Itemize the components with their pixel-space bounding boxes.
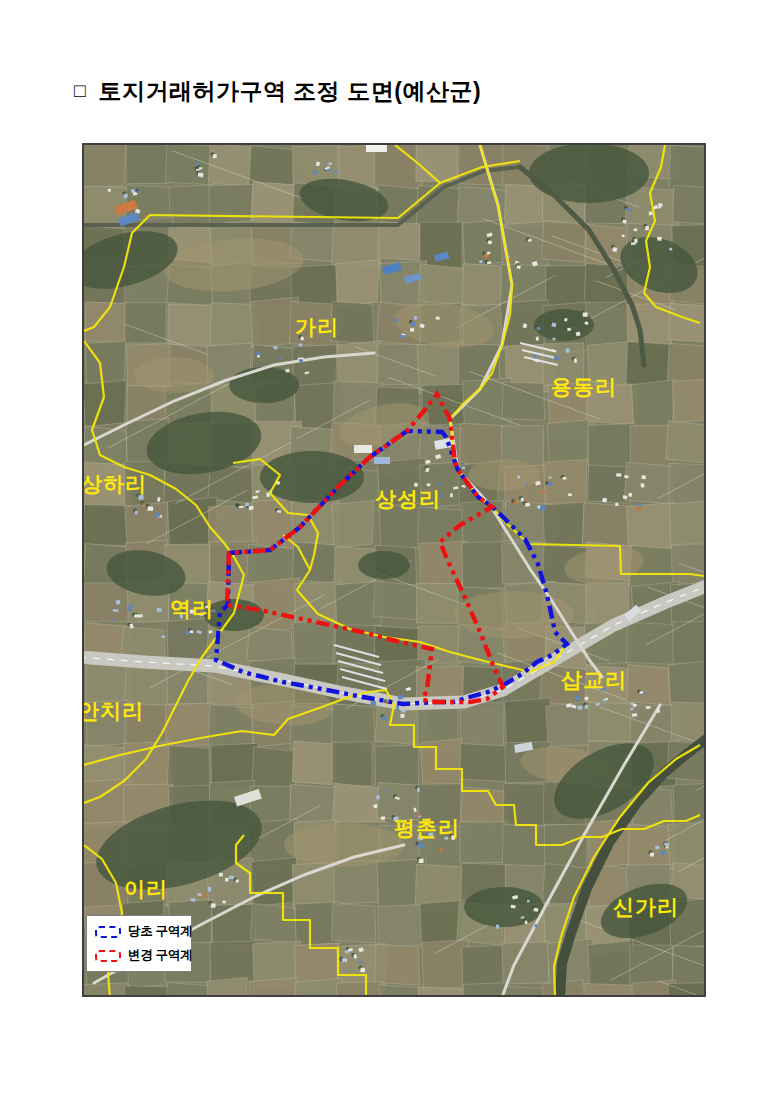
svg-text:용동리: 용동리 (551, 375, 617, 398)
original-zone-swatch (95, 926, 121, 938)
page-title: □ 토지거래허가구역 조정 도면(예산군) (74, 76, 481, 107)
map-legend: 당초 구역계 변경 구역계 (86, 915, 192, 972)
changed-zone-swatch (95, 950, 121, 962)
title-text: 토지거래허가구역 조정 도면(예산군) (98, 76, 481, 107)
svg-text:신가리: 신가리 (613, 895, 679, 918)
satellite-map-figure: 가리용동리상하리상성리역리삽교리안치리평촌리이리신가리 당초 구역계 변경 구역… (82, 143, 706, 997)
svg-text:역리: 역리 (170, 597, 214, 620)
svg-text:이리: 이리 (124, 877, 168, 900)
svg-text:안치리: 안치리 (84, 699, 144, 722)
svg-text:상하리: 상하리 (84, 472, 147, 495)
document-page: □ 토지거래허가구역 조정 도면(예산군) 가리용동리상하리상성리역리삽교리안치… (0, 0, 780, 1103)
legend-label-changed: 변경 구역계 (128, 947, 192, 964)
legend-label-original: 당초 구역계 (128, 923, 192, 940)
svg-text:가리: 가리 (295, 315, 339, 338)
legend-item-original-zone: 당초 구역계 (95, 923, 186, 940)
legend-item-changed-zone: 변경 구역계 (95, 947, 186, 964)
map-canvas: 가리용동리상하리상성리역리삽교리안치리평촌리이리신가리 (84, 145, 704, 995)
svg-text:상성리: 상성리 (375, 487, 441, 510)
section-bullet-icon: □ (74, 81, 85, 100)
svg-text:삽교리: 삽교리 (561, 668, 627, 691)
svg-text:평촌리: 평촌리 (394, 816, 460, 839)
